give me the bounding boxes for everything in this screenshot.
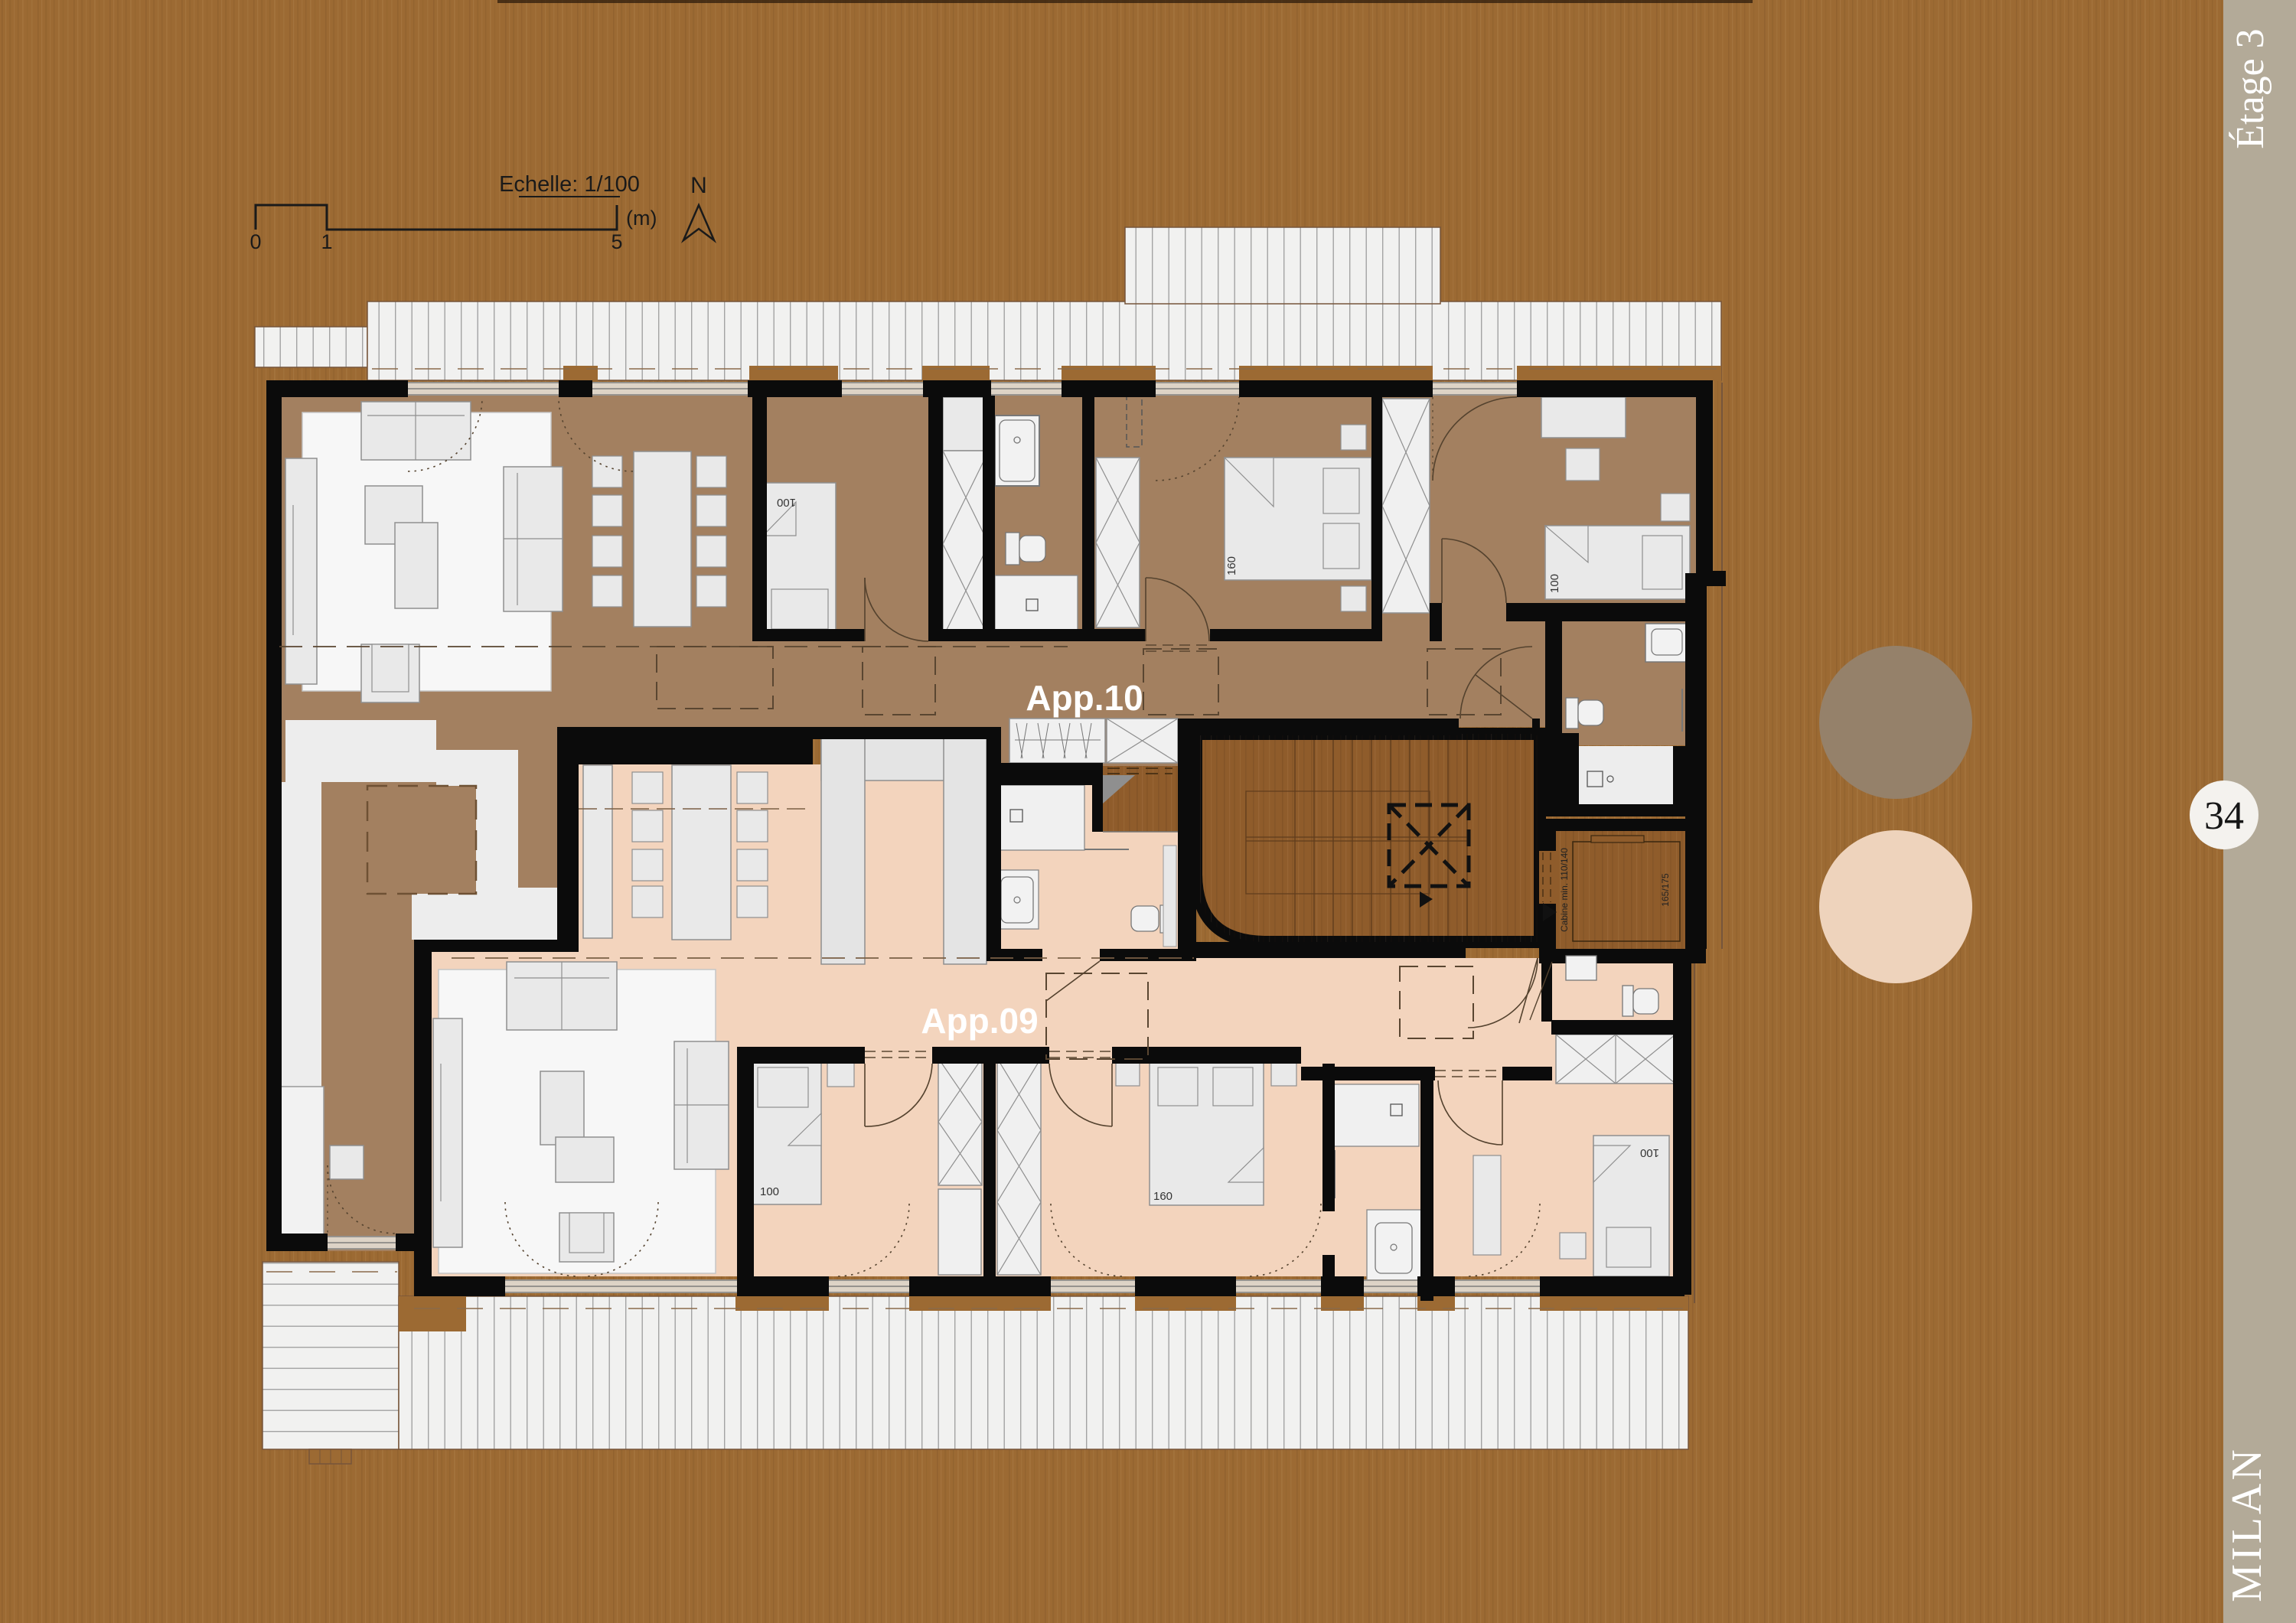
svg-text:MILAN: MILAN xyxy=(2223,1446,2271,1602)
svg-text:App.09: App.09 xyxy=(921,1001,1038,1041)
svg-text:165/175: 165/175 xyxy=(1660,873,1671,907)
svg-text:Echelle: 1/100: Echelle: 1/100 xyxy=(499,172,640,197)
svg-text:N: N xyxy=(690,173,707,198)
svg-text:App.10: App.10 xyxy=(1026,678,1143,718)
svg-text:160: 160 xyxy=(1153,1190,1172,1203)
svg-text:Étage 3: Étage 3 xyxy=(2228,28,2272,148)
svg-text:100: 100 xyxy=(777,496,796,509)
svg-text:160: 160 xyxy=(1225,556,1238,575)
svg-text:Cabine min. 110/140: Cabine min. 110/140 xyxy=(1559,848,1570,932)
svg-text:0: 0 xyxy=(249,230,261,253)
svg-text:(m): (m) xyxy=(626,207,657,230)
svg-text:5: 5 xyxy=(611,230,622,253)
svg-text:100: 100 xyxy=(1548,574,1561,593)
svg-text:34: 34 xyxy=(2204,794,2244,838)
svg-text:100: 100 xyxy=(760,1185,779,1198)
svg-text:1: 1 xyxy=(321,230,332,253)
svg-text:100: 100 xyxy=(1640,1146,1659,1159)
